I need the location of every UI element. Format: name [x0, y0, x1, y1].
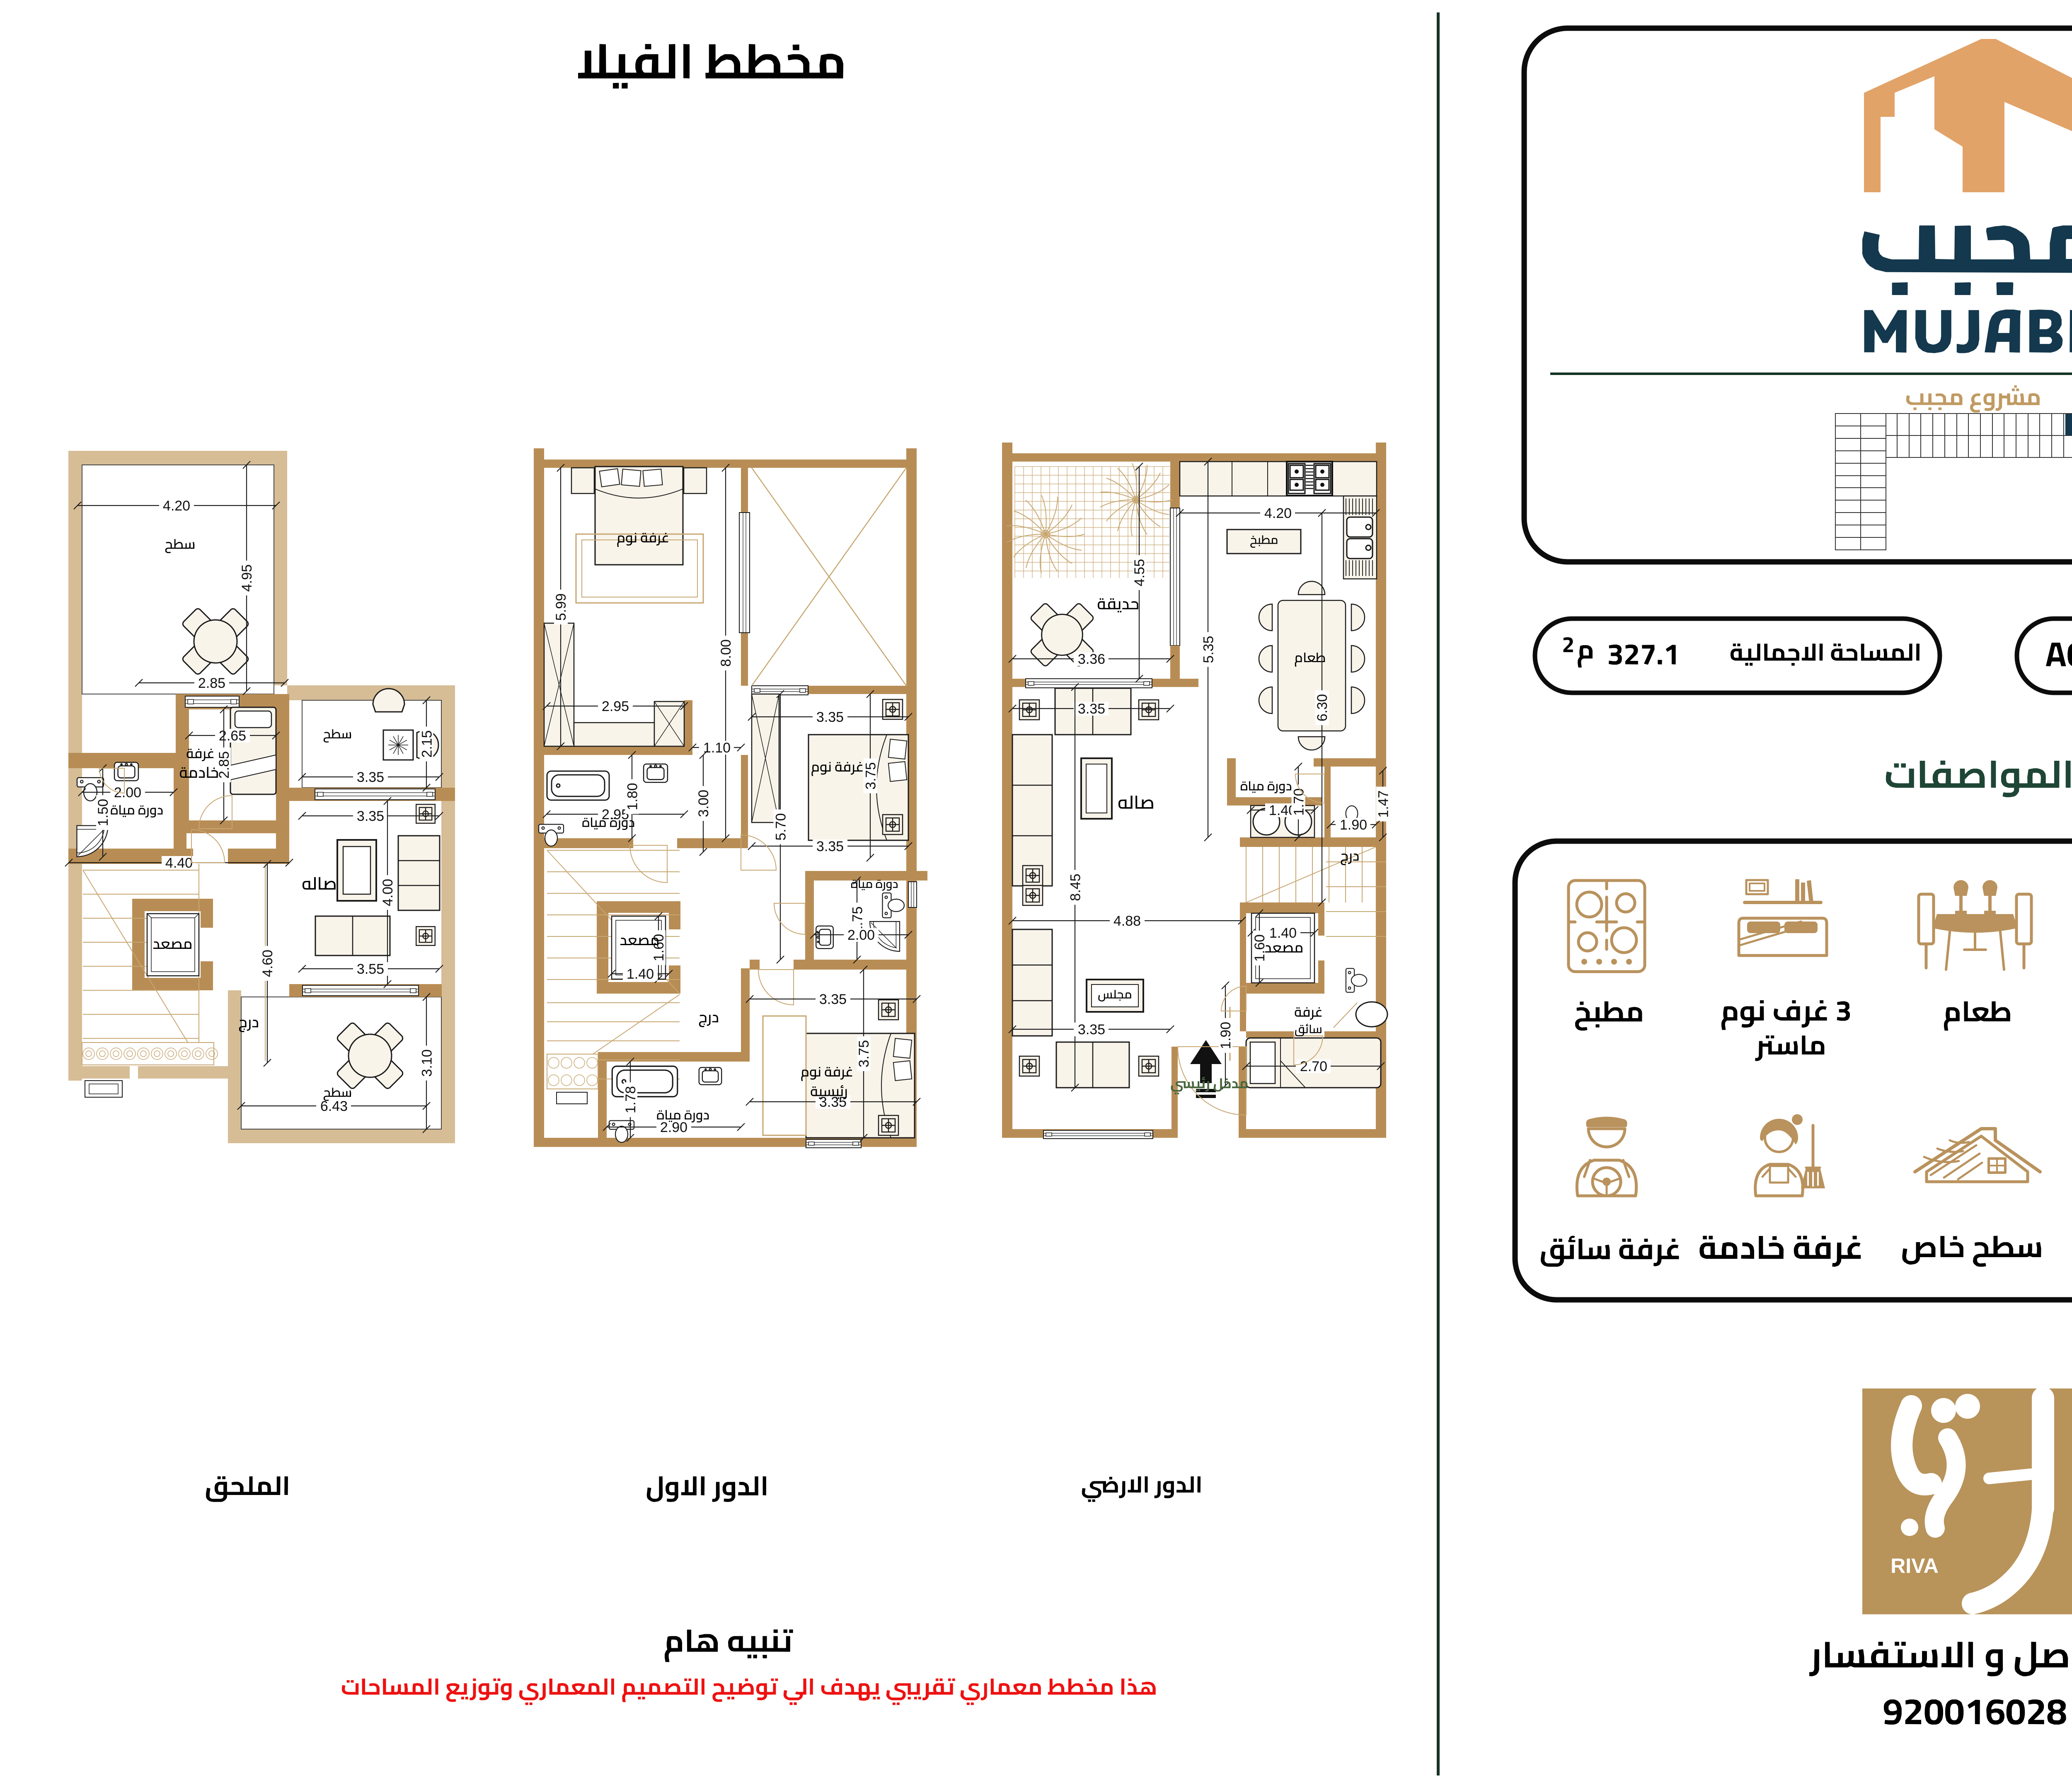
svg-text:3.36: 3.36 [1078, 651, 1105, 667]
svg-text:3.35: 3.35 [816, 709, 844, 725]
svg-text:RIVA: RIVA [1890, 1554, 1939, 1577]
svg-text:2.85: 2.85 [216, 751, 232, 779]
svg-text:3.35: 3.35 [1078, 701, 1105, 717]
svg-text:3.75: 3.75 [863, 762, 879, 789]
svg-text:1.90: 1.90 [1218, 1022, 1234, 1049]
svg-text:2.85: 2.85 [198, 675, 225, 691]
svg-text:3.00: 3.00 [696, 790, 712, 817]
svg-text:3.35: 3.35 [816, 839, 844, 854]
svg-text:3.10: 3.10 [419, 1049, 435, 1076]
svg-text:1.60: 1.60 [1252, 934, 1268, 962]
svg-text:3.35: 3.35 [357, 808, 384, 824]
svg-text:1.70: 1.70 [1291, 788, 1307, 815]
svg-text:1.90: 1.90 [1340, 817, 1367, 833]
svg-text:3.35: 3.35 [1078, 1022, 1105, 1038]
svg-text:3.35: 3.35 [819, 992, 847, 1007]
svg-text:4.20: 4.20 [1264, 506, 1292, 521]
svg-text:1.78: 1.78 [623, 1086, 639, 1113]
svg-text:4.40: 4.40 [165, 855, 193, 871]
svg-text:1.80: 1.80 [625, 783, 641, 810]
svg-text:4.20: 4.20 [163, 498, 190, 514]
svg-text:1.47: 1.47 [1376, 790, 1392, 818]
svg-text:3.35: 3.35 [357, 769, 384, 785]
svg-text:1.10: 1.10 [703, 740, 731, 756]
svg-text:4.95: 4.95 [239, 564, 255, 592]
svg-text:5.70: 5.70 [773, 813, 789, 840]
svg-text:6.30: 6.30 [1314, 694, 1330, 721]
svg-text:5.35: 5.35 [1201, 636, 1217, 663]
svg-text:2.65: 2.65 [219, 728, 246, 744]
svg-text:2.95: 2.95 [602, 699, 629, 714]
svg-text:3.55: 3.55 [357, 961, 384, 977]
svg-text:4.60: 4.60 [260, 950, 276, 977]
svg-text:2.00: 2.00 [847, 927, 875, 943]
svg-text:3.75: 3.75 [856, 1040, 872, 1067]
svg-text:1.50: 1.50 [95, 799, 111, 826]
svg-text:2.15: 2.15 [419, 730, 435, 757]
svg-text:2.90: 2.90 [660, 1120, 687, 1135]
svg-text:1.40: 1.40 [627, 966, 654, 982]
svg-text:1.40: 1.40 [1269, 925, 1297, 941]
svg-text:4.55: 4.55 [1132, 559, 1147, 586]
svg-text:5.99: 5.99 [553, 593, 569, 621]
svg-text:3.35: 3.35 [819, 1094, 847, 1110]
svg-text:6.43: 6.43 [320, 1098, 348, 1114]
svg-text:2.70: 2.70 [1300, 1059, 1327, 1074]
svg-text:4.00: 4.00 [380, 879, 396, 906]
svg-text:4.88: 4.88 [1113, 913, 1141, 929]
svg-text:8.00: 8.00 [718, 639, 734, 667]
svg-text:8.45: 8.45 [1068, 873, 1084, 901]
